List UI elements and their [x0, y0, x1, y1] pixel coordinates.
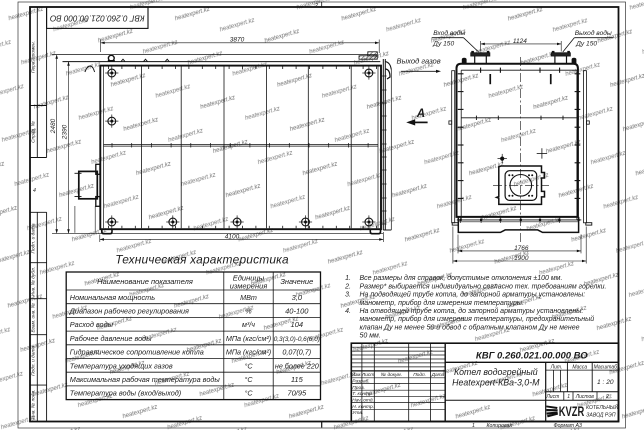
svg-text:Подп.: Подп.	[413, 372, 426, 378]
svg-text:Температура воды (вход/выход): Температура воды (вход/выход)	[70, 389, 181, 398]
svg-text:не более 220: не более 220	[275, 361, 319, 370]
svg-text:3.: 3.	[345, 292, 351, 299]
svg-text:Heatexpert-КВа-3,0-М: Heatexpert-КВа-3,0-М	[452, 378, 540, 388]
svg-text:Наименование показателя: Наименование показателя	[97, 277, 193, 286]
svg-text:°С: °С	[244, 361, 253, 370]
svg-text:4.: 4.	[345, 308, 351, 315]
svg-text:Пров.: Пров.	[352, 385, 365, 391]
svg-text:Т. контр.: Т. контр.	[352, 391, 373, 397]
svg-text:°С: °С	[244, 389, 253, 398]
svg-text:Размер* выбирается индивидуаль: Размер* выбирается индивидуально согласн…	[360, 282, 607, 290]
svg-text:2390: 2390	[62, 124, 69, 140]
svg-text:Значение: Значение	[280, 277, 313, 286]
svg-text:На отводящей трубе котла, до з: На отводящей трубе котла, до запорной ар…	[360, 307, 584, 315]
svg-text:Лист: Лист	[361, 372, 374, 378]
svg-text:3,0: 3,0	[292, 293, 303, 302]
svg-text:МПа (кгс/см²): МПа (кгс/см²)	[226, 334, 271, 343]
svg-text:м³/ч: м³/ч	[242, 320, 255, 329]
svg-text:манометр, прибор для измерения: манометр, прибор для измерения температу…	[360, 299, 525, 307]
svg-text:Нач. отд.: Нач. отд.	[352, 397, 374, 403]
svg-text:115: 115	[291, 375, 304, 384]
svg-text:Вход воды: Вход воды	[433, 29, 465, 37]
svg-text:1 : 20: 1 : 20	[597, 379, 614, 386]
svg-text:Утв.: Утв.	[352, 410, 363, 416]
svg-text:Техническая характеристика: Техническая характеристика	[115, 253, 289, 267]
svg-text:Диапазон рабочего регулировани: Диапазон рабочего регулирования	[69, 307, 189, 316]
svg-text:Ду 150: Ду 150	[575, 41, 597, 48]
svg-text:Масштаб: Масштаб	[594, 364, 618, 370]
svg-text:2: 2	[314, 3, 318, 9]
svg-text:Все размеры для справок, допус: Все размеры для справок, допустимые откл…	[360, 274, 563, 282]
svg-text:3870: 3870	[230, 37, 245, 44]
svg-text:1900: 1900	[514, 255, 529, 262]
svg-text:4100: 4100	[225, 233, 240, 240]
svg-text:50 мм.: 50 мм.	[360, 333, 381, 340]
svg-text:измерения: измерения	[230, 282, 268, 291]
svg-text:МВт: МВт	[240, 293, 257, 302]
svg-text:Инв. № дубл.: Инв. № дубл.	[31, 267, 37, 297]
svg-text:Выход газов: Выход газов	[397, 56, 441, 65]
svg-text:1: 1	[567, 394, 570, 400]
svg-text:Инв. № подл.: Инв. № подл.	[31, 389, 37, 419]
svg-text:Н. контр.: Н. контр.	[352, 404, 374, 410]
svg-text:А: А	[416, 108, 425, 120]
svg-text:Масса: Масса	[572, 364, 587, 370]
svg-text:Дата: Дата	[431, 372, 445, 378]
svg-text:1: 1	[472, 423, 475, 429]
svg-text:Взам. инв. №: Взам. инв. №	[31, 303, 37, 333]
svg-text:КОТЕЛЬНЫЙ: КОТЕЛЬНЫЙ	[586, 403, 618, 411]
svg-text:Ду 150: Ду 150	[432, 41, 454, 48]
svg-text:Листов: Листов	[575, 394, 595, 400]
svg-text:Изм.: Изм.	[351, 372, 361, 378]
svg-text:Котел водогрейный: Котел водогрейный	[454, 367, 538, 377]
svg-text:№ докум.: № докум.	[381, 372, 402, 378]
svg-text:Лист: Лист	[545, 394, 559, 400]
svg-text:Номинальная мощность: Номинальная мощность	[70, 293, 155, 302]
svg-text:Разраб.: Разраб.	[352, 378, 369, 384]
svg-text:70/95: 70/95	[287, 389, 307, 398]
svg-text:Лит.: Лит.	[550, 364, 563, 370]
svg-text:Расход воды: Расход воды	[70, 320, 114, 329]
svg-text:клапан Ду не менее 50 и обвод: клапан Ду не менее 50 и обвод с обратным…	[360, 323, 580, 331]
svg-text:МПа (кгс/см²): МПа (кгс/см²)	[226, 348, 271, 357]
svg-text:Подп. и дата: Подп. и дата	[31, 223, 37, 253]
svg-text:°С: °С	[244, 375, 253, 384]
svg-text:2480: 2480	[50, 118, 57, 134]
svg-text:На подводящей трубе котла, до: На подводящей трубе котла, до запорной а…	[360, 291, 586, 299]
svg-text:манометр, прибор для измерения: манометр, прибор для измерения температу…	[360, 315, 595, 323]
svg-text:104: 104	[291, 320, 304, 329]
svg-text:0,07(0,7): 0,07(0,7)	[282, 348, 311, 357]
svg-text:1.: 1.	[345, 275, 351, 282]
svg-text:4: 4	[33, 188, 36, 194]
svg-text:Рабочее давление воды: Рабочее давление воды	[70, 334, 152, 343]
svg-text:1766: 1766	[514, 245, 529, 252]
svg-text:40-100: 40-100	[285, 307, 309, 316]
svg-text:1124: 1124	[513, 38, 527, 45]
svg-text:2.: 2.	[344, 283, 351, 290]
svg-text:Подп. и дата: Подп. и дата	[31, 346, 37, 376]
svg-text:Максимальная рабочая температу: Максимальная рабочая температура воды	[70, 375, 221, 384]
svg-text:2: 2	[605, 394, 609, 400]
svg-text:КВГ 0.260.021.00.000 ВО: КВГ 0.260.021.00.000 ВО	[476, 350, 588, 361]
svg-text:ЗАВОД РЭП: ЗАВОД РЭП	[586, 412, 616, 418]
svg-text:Выход воды: Выход воды	[575, 29, 612, 37]
svg-text:Температура уходящих газов: Температура уходящих газов	[70, 361, 173, 370]
svg-text:Справ. №: Справ. №	[31, 121, 37, 143]
svg-text:КВГ 0.260.021.00.000 ВО: КВГ 0.260.021.00.000 ВО	[49, 13, 144, 22]
svg-text:Формат А3: Формат А3	[554, 423, 582, 429]
svg-text:0,3(3,0)-0,6(6,0): 0,3(3,0)-0,6(6,0)	[274, 336, 320, 343]
svg-text:KVZR: KVZR	[559, 403, 585, 420]
svg-text:Перв. примен.: Перв. примен.	[31, 41, 37, 73]
svg-text:Копировал: Копировал	[487, 423, 513, 429]
svg-text:%: %	[245, 307, 252, 316]
svg-text:Гидравлическое сопротивление к: Гидравлическое сопротивление котла	[70, 348, 204, 357]
